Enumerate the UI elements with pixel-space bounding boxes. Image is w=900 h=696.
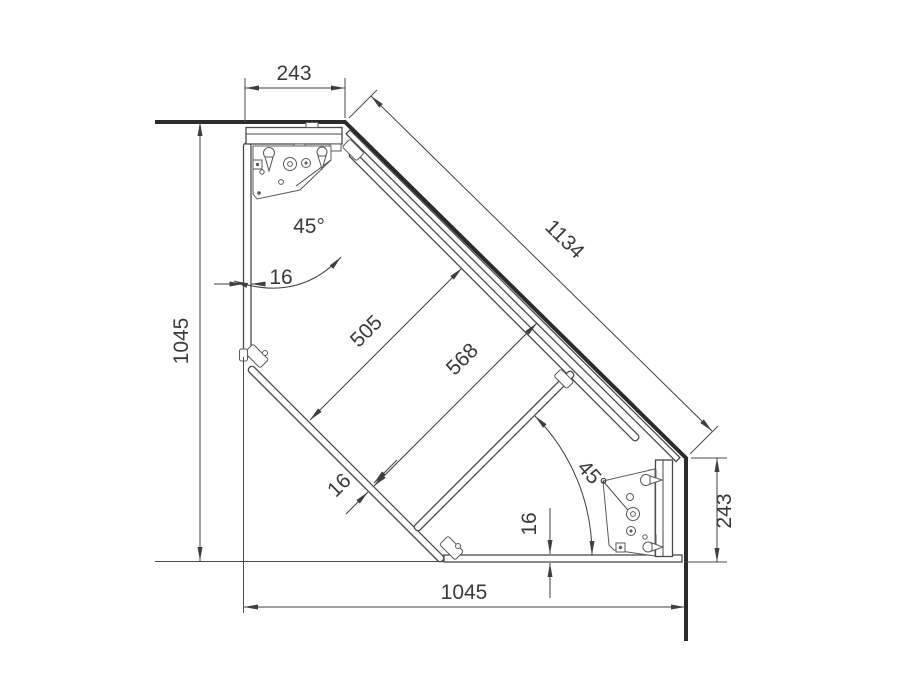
bottom-panel [444, 555, 682, 562]
bottom-right-hinge-bracket [603, 469, 663, 556]
corner-cabinet-drawing: 243 1134 1045 16 45° 505 568 16 45° 16 2… [0, 0, 900, 696]
top-panel-tab-2 [330, 144, 341, 151]
angle-label-top-45: 45° [293, 215, 325, 238]
wall-lines [155, 121, 687, 641]
dim-label-right-243: 243 [713, 493, 736, 528]
dim-label-bottom-16: 16 [518, 512, 541, 535]
technical-drawing-page: 243 1134 1045 16 45° 505 568 16 45° 16 2… [0, 0, 900, 696]
dim-line-505 [310, 268, 462, 420]
wall-diagonal [344, 121, 687, 459]
top-panel [246, 128, 342, 145]
dim-label-568: 568 [442, 339, 483, 380]
inner-side-panel [413, 370, 575, 532]
dim-line-door-16-a [374, 460, 397, 483]
dim-line-door-16-b [346, 492, 368, 514]
dim-label-left-16: 16 [269, 266, 292, 289]
dim-label-top-243: 243 [276, 62, 311, 85]
wall-mount-bit [306, 123, 318, 128]
angle-arc-bottom-45 [535, 416, 592, 555]
door-pivot-hinges [240, 139, 574, 560]
top-left-hinge-bracket [253, 146, 331, 199]
dim-line-diagonal-1134 [371, 96, 712, 431]
right-side-panel [656, 460, 673, 557]
cabinet-carcass [155, 123, 682, 563]
diagonal-back-panel [348, 150, 640, 442]
dim-label-diagonal-1134: 1134 [540, 215, 589, 263]
dim-line-568 [374, 323, 537, 486]
dim-label-505: 505 [346, 311, 387, 352]
dim-label-left-1045: 1045 [170, 318, 193, 365]
dim-label-bottom-1045: 1045 [441, 581, 488, 604]
diagonal-back-rail [346, 130, 680, 462]
door-panel [247, 365, 445, 563]
left-side-panel [244, 143, 252, 357]
